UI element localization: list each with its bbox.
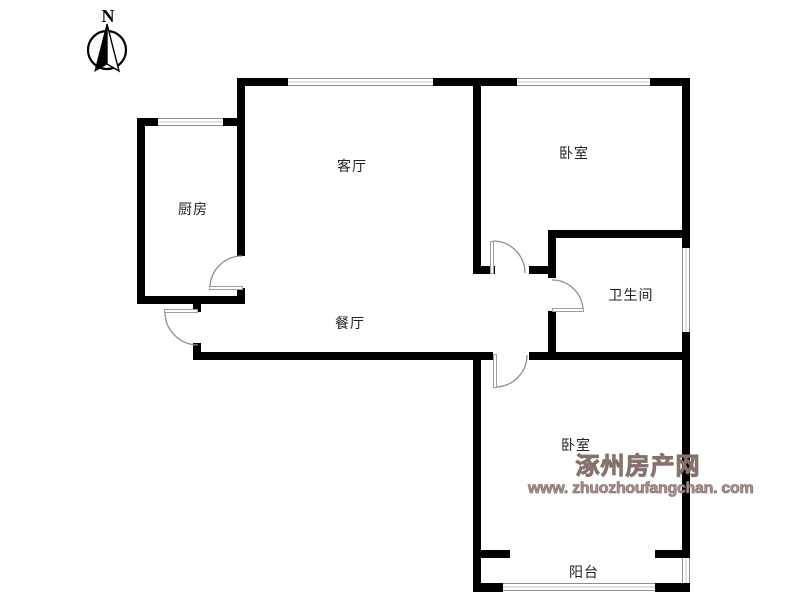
bedroom-bottom-door-arc [495, 355, 527, 387]
room-label-kitchen: 厨房 [178, 199, 208, 219]
room-label-balcony: 阳台 [569, 562, 599, 582]
entry-door-leaf [164, 309, 198, 313]
door-arcs-layer [0, 0, 800, 600]
bedroom-bottom-door-leaf [493, 354, 497, 388]
room-label-bathroom: 卫生间 [609, 285, 654, 305]
floor-plan: N 厨房 客厅 卧室 卫生间 餐厅 卧室 阳台 涿州房产网 www. zhuoz… [0, 0, 800, 600]
north-compass-icon [82, 18, 132, 78]
kitchen-door-arc [210, 256, 242, 288]
bathroom-door-arc [552, 280, 583, 311]
room-label-living-room: 客厅 [337, 156, 367, 176]
bathroom-door-leaf [552, 308, 584, 312]
watermark-site-url: www. zhuozhoufangchan. com [528, 480, 748, 498]
watermark-site-name: 涿州房产网 [528, 454, 748, 480]
kitchen-door-leaf [209, 286, 243, 290]
bedroom-top-door-leaf [490, 241, 494, 274]
entry-door-arc [165, 312, 198, 345]
room-label-dining-room: 餐厅 [335, 313, 365, 333]
room-label-bedroom-bottom: 卧室 [561, 435, 591, 455]
watermark: 涿州房产网 www. zhuozhoufangchan. com [528, 454, 748, 498]
room-label-bedroom-top: 卧室 [559, 143, 589, 163]
bedroom-top-door-arc [493, 241, 525, 273]
